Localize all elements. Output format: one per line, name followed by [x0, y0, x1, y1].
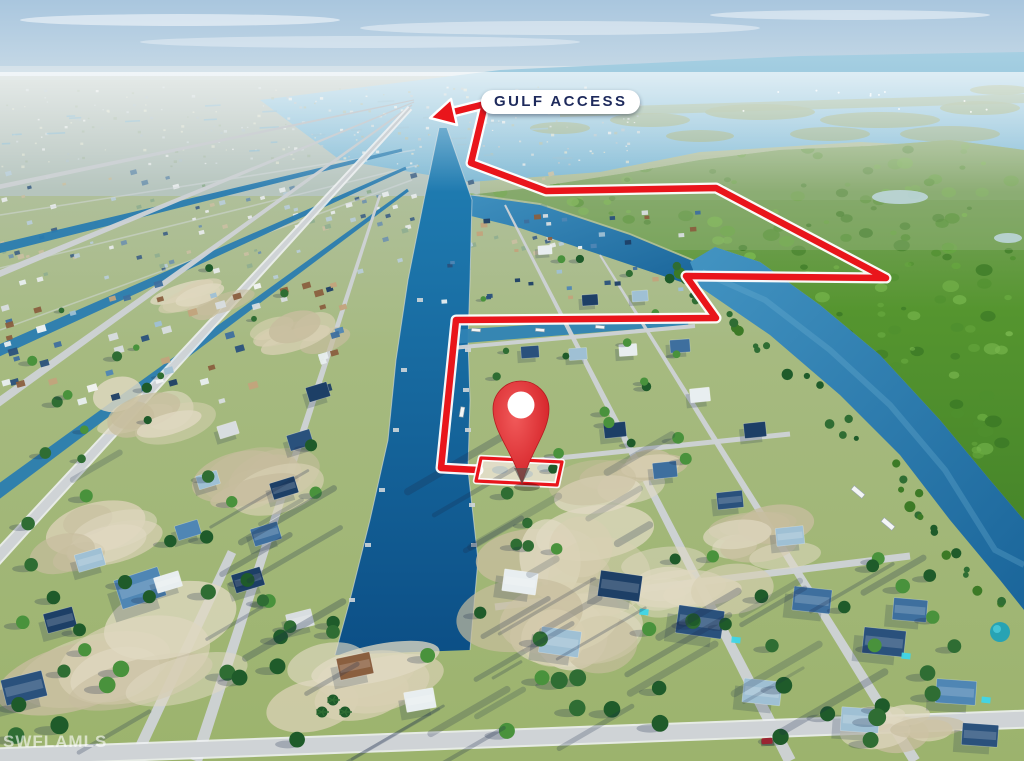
aerial-photo: GULF ACCESS SWFLAMLS — [0, 0, 1024, 761]
dome-structure — [990, 622, 1010, 642]
gulf-access-label: GULF ACCESS — [481, 90, 640, 114]
aerial-photo-scene — [0, 0, 1024, 761]
gulf-access-text: GULF ACCESS — [494, 93, 627, 110]
watermark: SWFLAMLS — [3, 732, 107, 752]
